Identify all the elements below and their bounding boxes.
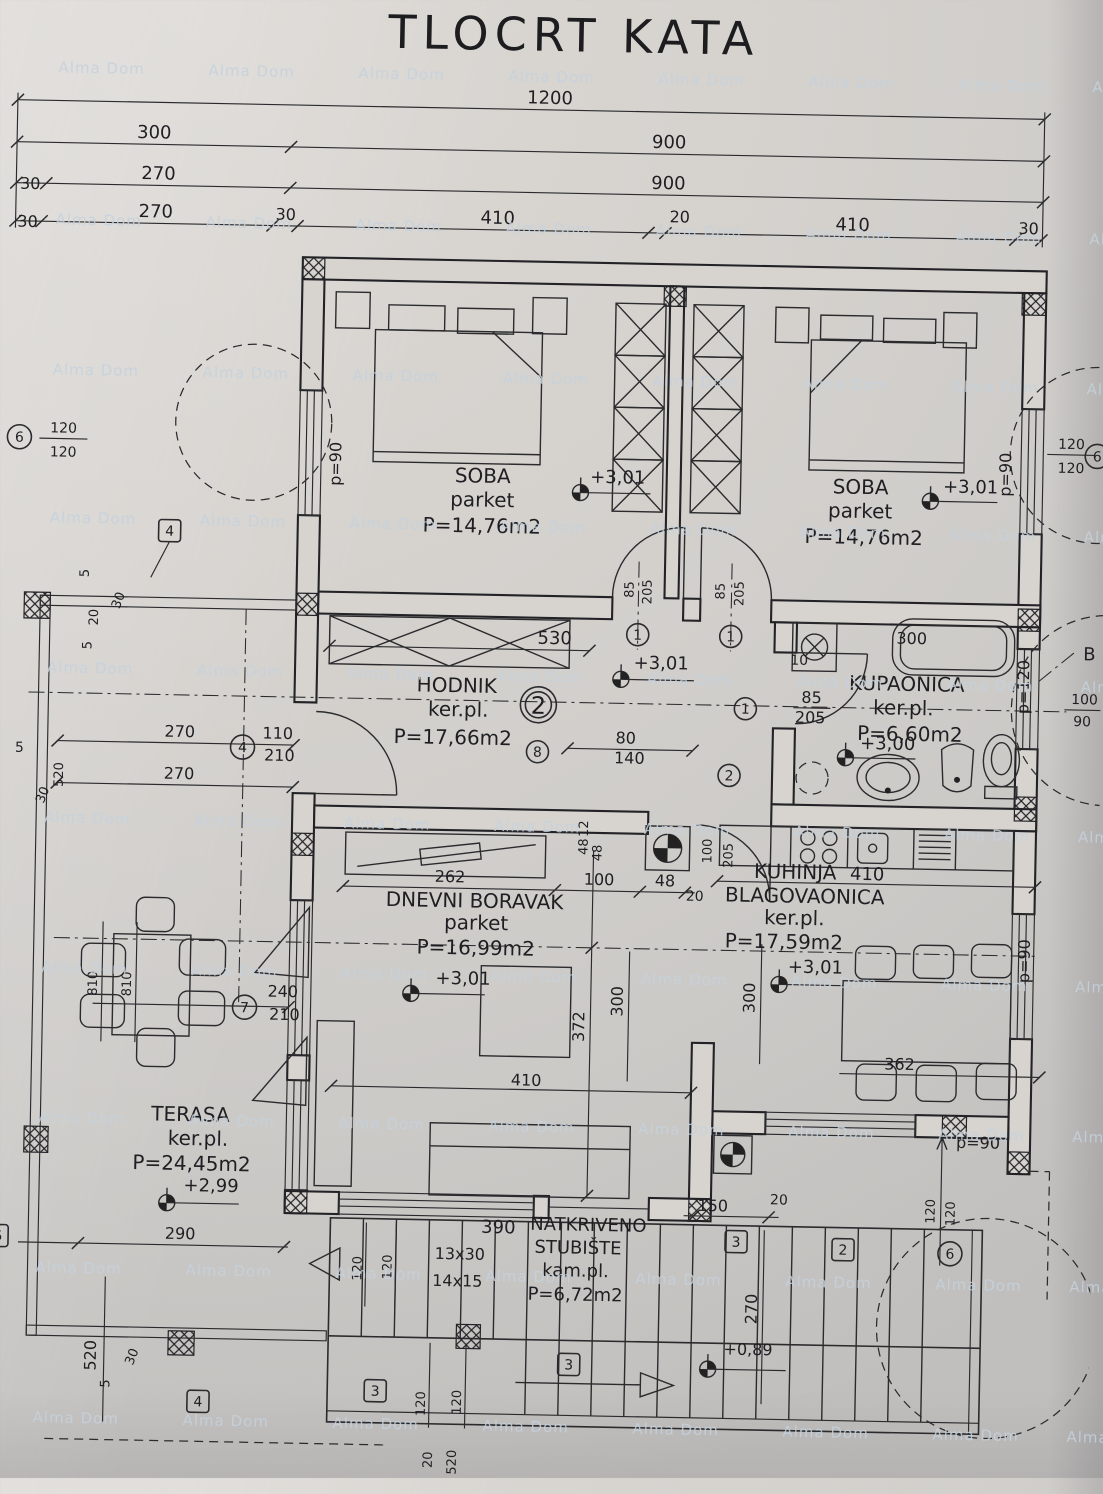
dim-label: 140 bbox=[614, 748, 645, 768]
dim-label: 290 bbox=[165, 1224, 196, 1244]
window-label: p=90 bbox=[326, 442, 346, 486]
room-floor: ker.pl. bbox=[428, 697, 489, 722]
scanned-floor-plan: { "title": "TLOCRT KATA", "watermark": "… bbox=[0, 0, 1103, 1478]
room-area: P=14,76m2 bbox=[804, 524, 923, 550]
dim-label: 410 bbox=[835, 214, 870, 236]
room-area: P=17,66m2 bbox=[393, 724, 512, 750]
dim-label: 210 bbox=[264, 746, 295, 766]
room-name: STUBIŠTE bbox=[534, 1236, 621, 1260]
dim-label: 30 bbox=[20, 174, 41, 193]
axis-marker-label: 2 bbox=[724, 768, 733, 784]
dim-label: 120 bbox=[50, 444, 77, 461]
axis-marker-label: 8 bbox=[533, 745, 542, 761]
dim-label: 5 bbox=[80, 641, 95, 650]
dim-label: 120 bbox=[414, 1391, 429, 1416]
dim-label: 80 bbox=[615, 728, 636, 747]
dim-label: 120 bbox=[450, 1390, 465, 1415]
axis-marker-label: 4 bbox=[193, 1394, 202, 1410]
dim-label: 120 bbox=[1057, 461, 1084, 478]
section-label: B bbox=[1083, 644, 1096, 665]
axis-marker-label: 6 bbox=[945, 1247, 954, 1263]
dim-label: 30 bbox=[123, 1346, 143, 1367]
axis-marker-label: 3 bbox=[731, 1235, 740, 1251]
stairs-steps: 13x30 bbox=[435, 1244, 486, 1264]
dim-label: 48 bbox=[577, 838, 592, 855]
dim-label: 205 bbox=[795, 708, 826, 728]
room-floor: kam.pl. bbox=[542, 1260, 609, 1282]
dim-label: 205 bbox=[640, 579, 655, 604]
door-hodnik-terrace bbox=[315, 711, 399, 795]
bed-soba1 bbox=[333, 292, 567, 465]
dim-label: 530 bbox=[537, 628, 572, 650]
dim-label: 100 bbox=[584, 870, 615, 890]
room-area: P=17,59m2 bbox=[725, 928, 844, 954]
dim-label: 810 bbox=[86, 971, 101, 996]
dim-label: 20 bbox=[669, 207, 690, 226]
room-tag: 2 bbox=[530, 692, 546, 720]
room-floor: parket bbox=[450, 487, 515, 512]
dim-label: 300 bbox=[896, 629, 927, 649]
axis-marker-label: 1 bbox=[726, 629, 735, 645]
room-area: P=24,45m2 bbox=[132, 1150, 251, 1176]
dim-label: 48 bbox=[590, 845, 605, 862]
dim-label: 210 bbox=[269, 1005, 300, 1025]
dim-label: 120 bbox=[923, 1199, 938, 1224]
axis-marker-label: 1 bbox=[633, 628, 642, 644]
window-soba2-east bbox=[1020, 409, 1044, 534]
axis-marker-label: 1 bbox=[741, 702, 750, 718]
dim-label: 48 bbox=[655, 871, 676, 890]
room-name: NATKRIVENO bbox=[530, 1214, 647, 1237]
dim-label: 120 bbox=[943, 1201, 958, 1226]
elevation-label: +3,01 bbox=[590, 467, 646, 489]
dim-label: 270 bbox=[742, 1294, 762, 1325]
axis-marker-label: 7 bbox=[240, 1000, 249, 1016]
room-name: SOBA bbox=[455, 463, 512, 488]
room-area: P=6,72m2 bbox=[527, 1284, 622, 1307]
room-name: SOBA bbox=[832, 474, 889, 499]
dim-label: 20 bbox=[87, 609, 102, 626]
dim-label: 520 bbox=[52, 762, 67, 787]
dim-label: 150 bbox=[697, 1196, 728, 1216]
dim-label: 520 bbox=[81, 1340, 101, 1371]
dim-label: 100 bbox=[1071, 692, 1098, 709]
room-floor: ker.pl. bbox=[764, 905, 825, 930]
dim-label: 205 bbox=[721, 843, 736, 868]
dining-table-chairs bbox=[841, 942, 1019, 1103]
axis-marker-label: 3 bbox=[371, 1384, 380, 1400]
axis-marker-label: 4 bbox=[165, 524, 174, 540]
elevation-label: +3,01 bbox=[943, 476, 999, 498]
axis-marker-label: 5 bbox=[0, 1228, 3, 1244]
room-name: HODNIK bbox=[416, 672, 497, 698]
dim-label: 120 bbox=[350, 1256, 365, 1281]
dim-label: 30 bbox=[275, 205, 296, 224]
room-name: TERASA bbox=[150, 1101, 230, 1127]
dim-label: 90 bbox=[1073, 714, 1091, 730]
dim-label: 85 bbox=[713, 583, 728, 600]
dim-label: 270 bbox=[164, 722, 195, 742]
hall-closet bbox=[329, 616, 570, 669]
dim-label: 372 bbox=[569, 1011, 589, 1042]
floor-plan-drawing: 1200 300 900 30 270 900 30 270 30 410 20… bbox=[0, 0, 1103, 1488]
staircase bbox=[307, 1217, 983, 1434]
stairs-steps: 14x15 bbox=[432, 1271, 483, 1291]
dim-label: 300 bbox=[607, 986, 627, 1017]
axis-marker-label: 6 bbox=[1093, 449, 1102, 465]
dim-label: 20 bbox=[770, 1192, 788, 1208]
dimension-labels: 530 80 140 85 205 85 205 85 205 100 205 … bbox=[1, 417, 1103, 1487]
dim-label: 300 bbox=[740, 982, 760, 1013]
dim-label: 120 bbox=[50, 420, 77, 437]
dim-label: 5 bbox=[15, 740, 24, 756]
window-label: p=90 bbox=[1014, 939, 1034, 983]
axis-marker-label: 6 bbox=[15, 430, 24, 446]
elevation-label: +0,89 bbox=[723, 1339, 772, 1359]
dim-label: 270 bbox=[138, 201, 173, 223]
dim-label: 5 bbox=[78, 569, 93, 578]
room-name: KUPAONICA bbox=[849, 671, 965, 697]
room-area: P=16,99m2 bbox=[416, 934, 535, 960]
elevation-label: +3,01 bbox=[633, 653, 689, 675]
elevation-label: +3,01 bbox=[435, 968, 491, 990]
dim-label: 120 bbox=[1058, 437, 1085, 454]
elevation-label: +3,00 bbox=[860, 733, 916, 755]
dim-label: 900 bbox=[652, 132, 687, 154]
plan-title: TLOCRT KATA bbox=[388, 5, 760, 66]
room-floor: ker.pl. bbox=[168, 1126, 229, 1151]
window-label: p=90 bbox=[956, 1133, 1000, 1153]
window-label: p=90 bbox=[995, 453, 1015, 497]
dim-label: 100 bbox=[700, 838, 715, 863]
dim-label: 5 bbox=[98, 1379, 113, 1388]
dim-label: 30 bbox=[17, 212, 38, 231]
dim-label: 30 bbox=[109, 590, 129, 611]
dim-label: 300 bbox=[137, 122, 172, 144]
elevation-label: +2,99 bbox=[183, 1175, 239, 1197]
dim-label: 410 bbox=[511, 1070, 542, 1090]
dim-label: 20 bbox=[421, 1451, 436, 1468]
dim-label: 362 bbox=[884, 1054, 915, 1074]
dim-label: 270 bbox=[164, 764, 195, 784]
top-dimension-chains: 1200 300 900 30 270 900 30 270 30 410 20… bbox=[9, 78, 1051, 251]
dim-label: 410 bbox=[850, 864, 885, 886]
axis-marker-label: 3 bbox=[564, 1357, 573, 1373]
window-dnevni-terrace-door bbox=[251, 899, 313, 1190]
dim-label: 520 bbox=[445, 1450, 460, 1475]
dim-label: 30 bbox=[1018, 219, 1039, 238]
dim-label: 240 bbox=[267, 982, 298, 1002]
window-soba1-west bbox=[298, 390, 322, 515]
bed-soba2 bbox=[773, 307, 977, 473]
room-area: P=14,76m2 bbox=[422, 513, 541, 539]
dim-label: 85 bbox=[801, 688, 822, 707]
axis-marker-label: 2 bbox=[838, 1243, 847, 1259]
room-floor: ker.pl. bbox=[873, 695, 934, 720]
dim-label: 20 bbox=[686, 889, 704, 905]
dim-label: 85 bbox=[622, 581, 637, 598]
room-floor: parket bbox=[444, 910, 509, 935]
dim-label: 110 bbox=[262, 723, 293, 743]
sofa bbox=[314, 1021, 632, 1199]
plan-sheet: Alma DomAlma DomAlma DomAlma DomAlma Dom… bbox=[0, 0, 1103, 1488]
window-label: p=120 bbox=[1013, 660, 1033, 714]
dim-label: 120 bbox=[380, 1254, 395, 1279]
dim-label: 1200 bbox=[527, 87, 573, 109]
axis-marker-label: 4 bbox=[238, 740, 247, 756]
dim-label: 900 bbox=[651, 173, 686, 195]
dim-label: 10 bbox=[790, 653, 808, 669]
dim-label: 205 bbox=[732, 581, 747, 606]
elevation-label: +3,01 bbox=[788, 957, 844, 979]
dim-label: 262 bbox=[435, 867, 466, 887]
room-name: KUHINJA bbox=[754, 859, 837, 885]
dim-label: 410 bbox=[480, 208, 515, 230]
coffee-table bbox=[480, 966, 572, 1058]
room-floor: parket bbox=[828, 498, 893, 523]
window-kuhinja-south bbox=[765, 1112, 915, 1137]
dim-label: 390 bbox=[481, 1217, 516, 1239]
dim-label: 12 bbox=[577, 820, 592, 837]
dim-label: 270 bbox=[141, 163, 176, 185]
dim-label: 810 bbox=[120, 971, 135, 996]
